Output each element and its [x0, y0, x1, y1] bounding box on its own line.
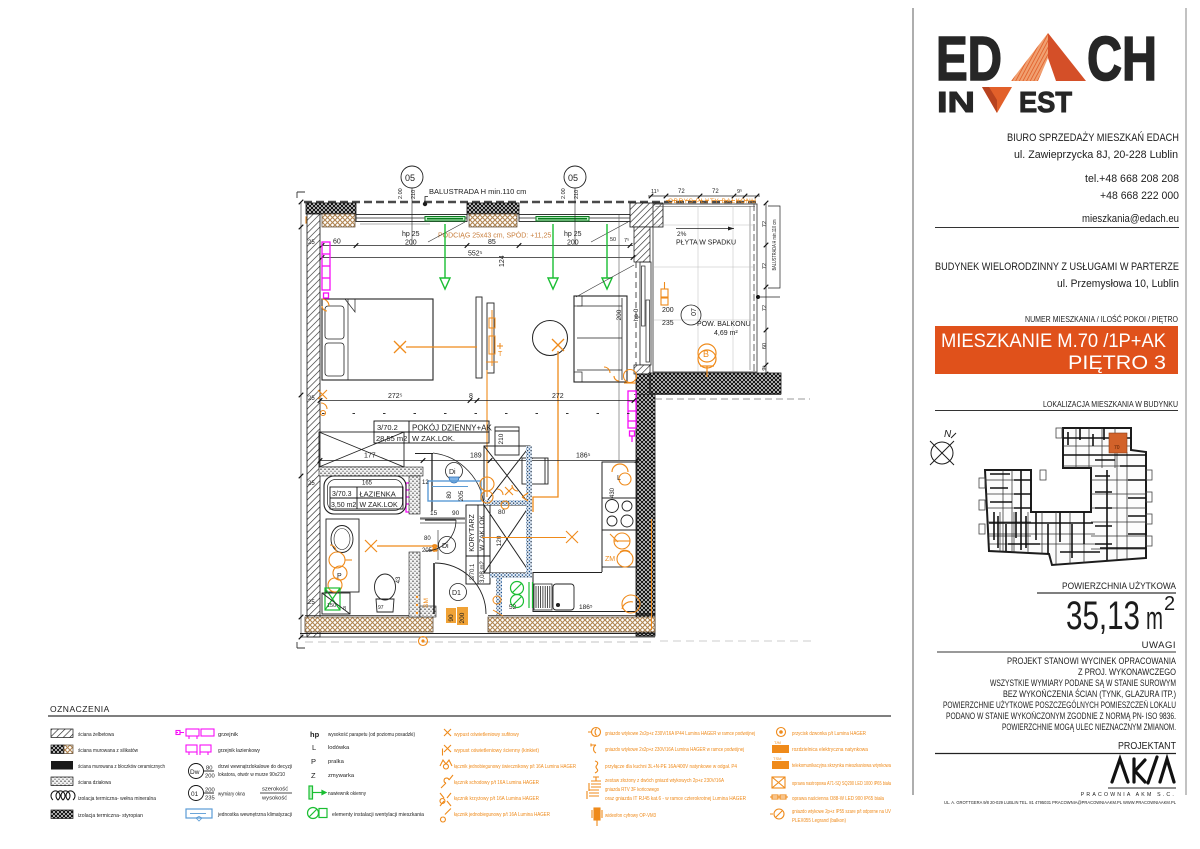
- svg-text:2: 2: [1164, 593, 1175, 615]
- svg-text:7⁵: 7⁵: [624, 237, 629, 244]
- svg-text:210: 210: [411, 190, 417, 199]
- svg-text:80: 80: [498, 509, 506, 516]
- svg-text:205: 205: [422, 548, 433, 554]
- svg-text:POKÓJ DZIENNY+AK: POKÓJ DZIENNY+AK: [412, 424, 492, 433]
- svg-text:177: 177: [364, 453, 376, 460]
- svg-text:ED: ED: [936, 25, 1002, 94]
- svg-text:05: 05: [568, 173, 578, 183]
- svg-text:hp 0: hp 0: [633, 308, 640, 321]
- svg-text:TSM: TSM: [773, 756, 781, 761]
- svg-text:IN: IN: [937, 87, 975, 119]
- svg-text:80: 80: [446, 491, 453, 499]
- svg-text:552⁵: 552⁵: [468, 251, 483, 258]
- svg-text:B: B: [703, 349, 709, 359]
- svg-text:186⁵: 186⁵: [576, 453, 591, 460]
- svg-text:T: T: [498, 351, 503, 358]
- svg-text:200: 200: [205, 788, 215, 794]
- svg-text:gniazdo wtykowe 2x2p+z 230V/16: gniazdo wtykowe 2x2p+z 230V/16A Lumina H…: [605, 747, 744, 753]
- svg-text:12: 12: [422, 480, 429, 486]
- svg-text:ul. Zawieprzycka 8J, 20-228 Lu: ul. Zawieprzycka 8J, 20-228 Lublin: [1014, 149, 1178, 161]
- svg-text:ściana murowana z silikatów: ściana murowana z silikatów: [78, 748, 139, 754]
- svg-text:BUDYNEK WIELORODZINNY Z USŁUGA: BUDYNEK WIELORODZINNY Z USŁUGAMI W PARTE…: [935, 261, 1179, 273]
- svg-text:SM: SM: [423, 598, 430, 608]
- svg-text:grzejnik łazienkowy: grzejnik łazienkowy: [218, 748, 260, 754]
- svg-text:72: 72: [762, 221, 768, 227]
- svg-text:8: 8: [343, 606, 346, 612]
- svg-text:ul. Przemysłowa 10, Lublin: ul. Przemysłowa 10, Lublin: [1057, 278, 1179, 290]
- svg-text:UL. A. GROTTGERA 9/8 20-029: UL. A. GROTTGERA 9/8 20-029 LUBLIN TEL. …: [944, 800, 1177, 805]
- svg-text:wypust oświetleniowy ścienny (: wypust oświetleniowy ścienny (kinkiet): [453, 748, 539, 754]
- svg-text:izolacja termiczna- wełna mine: izolacja termiczna- wełna mineralna: [78, 796, 157, 802]
- svg-text:8: 8: [469, 393, 473, 400]
- svg-text:pralka: pralka: [328, 759, 345, 765]
- svg-text:52: 52: [509, 604, 517, 611]
- svg-text:lokatora, otwór w murze 90x210: lokatora, otwór w murze 90x210: [218, 772, 285, 778]
- svg-text:124: 124: [499, 255, 506, 267]
- svg-text:9⁵: 9⁵: [761, 365, 768, 370]
- svg-text:25: 25: [308, 396, 315, 402]
- svg-text:+48 668 222 000: +48 668 222 000: [1100, 190, 1179, 202]
- svg-text:CH: CH: [1087, 25, 1157, 94]
- svg-text:PODANO W STANIE WYKOŃCZONYM ZG: PODANO W STANIE WYKOŃCZONYM ZGODNIE Z NO…: [946, 711, 1176, 721]
- svg-text:189: 189: [470, 453, 482, 460]
- svg-text:9⁵: 9⁵: [737, 188, 742, 195]
- svg-text:3/70.2: 3/70.2: [377, 423, 398, 432]
- svg-text:hp: hp: [310, 730, 320, 739]
- svg-text:80: 80: [206, 766, 212, 772]
- svg-text:200: 200: [205, 774, 215, 780]
- svg-text:rozdzielnica elektryczna natyn: rozdzielnica elektryczna natynkowa: [792, 747, 869, 753]
- svg-text:gniazdo wtykowe 2x2p+z 230V/16: gniazdo wtykowe 2x2p+z 230V/16A IP44 Lum…: [605, 731, 755, 737]
- svg-text:łącznik schodowy p/t 16A Lumi: łącznik schodowy p/t 16A Lumina HAGER: [454, 780, 539, 786]
- svg-text:2%: 2%: [677, 231, 687, 238]
- svg-text:90: 90: [452, 510, 460, 517]
- svg-text:150: 150: [327, 603, 336, 609]
- svg-text:25: 25: [308, 600, 315, 606]
- svg-text:Z: Z: [311, 771, 316, 780]
- svg-text:łącznik krzyżowy p/t 16A Lumi: łącznik krzyżowy p/t 16A Lumina HAGER: [454, 796, 539, 802]
- svg-text:05: 05: [405, 173, 415, 183]
- svg-text:POW. BALKONU: POW. BALKONU: [697, 321, 751, 328]
- svg-text:izolacja termiczna- styropian: izolacja termiczna- styropian: [78, 813, 143, 819]
- svg-text:85: 85: [488, 239, 496, 246]
- svg-text:Di: Di: [442, 543, 449, 550]
- svg-text:3,50 m2: 3,50 m2: [331, 502, 356, 509]
- svg-text:wysokość parapetu (od poziomu: wysokość parapetu (od poziomu posadzki): [327, 732, 415, 738]
- svg-text:4,69 m²: 4,69 m²: [714, 330, 738, 337]
- svg-text:11⁵: 11⁵: [651, 188, 659, 195]
- svg-text:W ZAK.LOK: W ZAK.LOK: [360, 502, 398, 509]
- svg-text:łącznik jednobiegunowy świeczn: łącznik jednobiegunowy świecznikowy p/t …: [454, 764, 576, 770]
- svg-text:P: P: [311, 757, 316, 766]
- svg-text:25: 25: [308, 240, 315, 246]
- svg-text:OBRYS PŁYTY BALKONU: OBRYS PŁYTY BALKONU: [668, 198, 756, 205]
- svg-text:NUMER MIESZKANIA / ILOŚĆ POKOI: NUMER MIESZKANIA / ILOŚĆ POKOI / PIĘTRO: [1025, 313, 1178, 324]
- svg-text:elementy instalacji wentylacji: elementy instalacji wentylacji mieszkani…: [332, 812, 425, 818]
- svg-text:PROJEKTANT: PROJEKTANT: [1118, 740, 1176, 752]
- svg-text:POWIERZCHNIE MOGĄ ULEC NIEZNAC: POWIERZCHNIE MOGĄ ULEC NIEZNACZNYM ZMIAN…: [1002, 722, 1176, 732]
- svg-text:KORYTARZ: KORYTARZ: [469, 514, 476, 552]
- svg-text:POWIERZCHNIA UŻYTKOWA: POWIERZCHNIA UŻYTKOWA: [1062, 581, 1177, 592]
- svg-text:jednostka wewnętrzna klimatyza: jednostka wewnętrzna klimatyzacji: [217, 812, 292, 818]
- svg-text:przycisk dzwonka p/t Lumina HA: przycisk dzwonka p/t Lumina HAGER: [792, 731, 866, 737]
- svg-text:70: 70: [1114, 445, 1120, 451]
- svg-text:60: 60: [762, 343, 768, 349]
- svg-text:ŁAZIENKA: ŁAZIENKA: [360, 490, 396, 499]
- svg-text:L: L: [617, 475, 621, 482]
- svg-text:90: 90: [448, 614, 455, 622]
- svg-text:97: 97: [378, 605, 384, 611]
- svg-text:15: 15: [430, 510, 438, 517]
- svg-text:72: 72: [712, 189, 719, 195]
- svg-text:W ZAK.LOK.: W ZAK.LOK.: [412, 434, 455, 443]
- svg-text:01: 01: [191, 791, 199, 798]
- svg-text:07: 07: [691, 308, 698, 316]
- svg-text:60: 60: [333, 239, 341, 246]
- svg-text:L: L: [312, 743, 316, 752]
- svg-text:wymiary okna: wymiary okna: [217, 792, 245, 798]
- svg-text:235: 235: [662, 320, 674, 327]
- svg-text:szerokość: szerokość: [262, 787, 288, 793]
- svg-text:2.00: 2.00: [561, 188, 567, 199]
- svg-text:ściana działowa: ściana działowa: [78, 780, 112, 786]
- svg-text:BALUSTRADA H min.110 cm: BALUSTRADA H min.110 cm: [429, 187, 526, 196]
- svg-text:D1: D1: [452, 590, 461, 597]
- svg-text:grzejnik: grzejnik: [218, 732, 238, 738]
- svg-text:wideofon cyfrowy OP-VM3: wideofon cyfrowy OP-VM3: [604, 813, 656, 819]
- svg-text:2.00: 2.00: [398, 188, 404, 199]
- svg-text:tel.+48 668 208 208: tel.+48 668 208 208: [1085, 173, 1179, 185]
- svg-text:50: 50: [610, 237, 616, 243]
- svg-text:200: 200: [616, 309, 623, 320]
- svg-text:gniazdo wtykowe 2p+z IP55 szar: gniazdo wtykowe 2p+z IP55 szare p/t odpo…: [792, 809, 891, 815]
- svg-text:72: 72: [762, 263, 768, 269]
- svg-text:BEZ WYKOŃCZENIA ŚCIAN (TYNK, G: BEZ WYKOŃCZENIA ŚCIAN (TYNK, GLAZURA ITP…: [1003, 688, 1176, 699]
- svg-text:BIURO SPRZEDAŻY MIESZKAŃ EDACH: BIURO SPRZEDAŻY MIESZKAŃ EDACH: [1007, 131, 1179, 144]
- svg-text:205: 205: [458, 490, 465, 501]
- svg-text:72: 72: [678, 189, 685, 195]
- svg-text:28,55 m2: 28,55 m2: [376, 434, 407, 443]
- svg-text:OZNACZENIA: OZNACZENIA: [50, 704, 110, 714]
- svg-text:72: 72: [762, 305, 768, 311]
- svg-text:MIESZKANIE M.70 /1P+AK: MIESZKANIE M.70 /1P+AK: [941, 331, 1166, 352]
- svg-text:W ZAK.LOK: W ZAK.LOK: [479, 515, 486, 551]
- svg-text:nawiewnik okienny: nawiewnik okienny: [328, 791, 366, 797]
- svg-text:ZM: ZM: [605, 556, 615, 563]
- svg-text:hp 25: hp 25: [564, 231, 582, 238]
- svg-text:PROJEKT STANOWI WYCINEK OPRACO: PROJEKT STANOWI WYCINEK OPRACOWANIA: [1007, 656, 1176, 666]
- svg-text:3/70.3: 3/70.3: [332, 491, 352, 498]
- svg-text:zestaw złożony z dwóch gniazd: zestaw złożony z dwóch gniazd wtykowych …: [605, 778, 724, 784]
- svg-text:200: 200: [662, 307, 674, 314]
- svg-text:N: N: [944, 429, 952, 440]
- svg-text:EST: EST: [1019, 87, 1072, 119]
- svg-text:210: 210: [574, 190, 580, 199]
- svg-text:PRACOWNIA AKM S.C.: PRACOWNIA AKM S.C.: [1081, 792, 1176, 798]
- svg-text:272: 272: [552, 393, 564, 400]
- svg-text:LOKALIZACJA MIESZKANIA W BUDYN: LOKALIZACJA MIESZKANIA W BUDYNKU: [1043, 399, 1178, 409]
- svg-text:drzwi wewnątrzlokalowe do decy: drzwi wewnątrzlokalowe do decyzji: [218, 764, 292, 770]
- svg-text:oprawa nastropowa A71-SQ SQ290: oprawa nastropowa A71-SQ SQ290 LED 1000 …: [792, 781, 892, 787]
- svg-text:430: 430: [610, 487, 616, 498]
- svg-text:T/M: T/M: [774, 740, 781, 745]
- svg-text:gniazda RTV 3F końcowego: gniazda RTV 3F końcowego: [605, 787, 659, 793]
- svg-text:lodówka: lodówka: [328, 745, 350, 751]
- svg-text:m: m: [1146, 600, 1163, 636]
- svg-text:hp 25: hp 25: [402, 231, 420, 238]
- svg-text:PLEX055 Legrand (balkon): PLEX055 Legrand (balkon): [792, 818, 846, 824]
- svg-text:PODCIĄG 25x43 cm, SPÓD: +11,25: PODCIĄG 25x43 cm, SPÓD: +11,25: [438, 231, 551, 240]
- svg-text:Dw: Dw: [190, 769, 200, 776]
- svg-text:35,13: 35,13: [1066, 594, 1140, 638]
- svg-text:235: 235: [205, 796, 215, 802]
- svg-text:186⁵: 186⁵: [579, 604, 593, 611]
- svg-text:WSZYSTKIE WYMIARY PODANE SĄ W: WSZYSTKIE WYMIARY PODANE SĄ W STANIE SUR…: [990, 678, 1176, 688]
- svg-text:ściana murowana z bloczków cer: ściana murowana z bloczków ceramicznych: [78, 764, 165, 770]
- svg-text:80: 80: [424, 536, 431, 542]
- svg-text:telekomunikacyjna skrzynka mie: telekomunikacyjna skrzynka mieszkaniowa …: [792, 763, 892, 769]
- svg-text:200: 200: [459, 612, 466, 623]
- svg-text:BALUSTRADA H min.110 cm: BALUSTRADA H min.110 cm: [772, 219, 778, 270]
- svg-text:272⁵: 272⁵: [388, 393, 403, 400]
- svg-text:POWIERZCHNIE UŻYTKOWE POSZCZEG: POWIERZCHNIE UŻYTKOWE POSZCZEGÓLNYCH POM…: [943, 700, 1176, 710]
- svg-text:ściana żelbetowa: ściana żelbetowa: [78, 732, 115, 738]
- svg-text:oraz gniazda IT RJ45 kat.6 - w: oraz gniazda IT RJ45 kat.6 - w ramce czt…: [605, 796, 746, 802]
- svg-text:przyłącze dla kuchni 3L+N-PE 1: przyłącze dla kuchni 3L+N-PE 16A/400V na…: [605, 764, 737, 770]
- svg-text:zmywarka: zmywarka: [328, 773, 355, 779]
- svg-text:UWAGI: UWAGI: [1142, 640, 1176, 651]
- svg-text:mieszkania@edach.eu: mieszkania@edach.eu: [1082, 213, 1179, 225]
- svg-text:90: 90: [432, 544, 439, 552]
- svg-text:120: 120: [496, 535, 503, 546]
- svg-text:łącznik jednobiegunowy p/t 16A: łącznik jednobiegunowy p/t 16A Lumina HA…: [454, 812, 550, 818]
- svg-text:PIĘTRO 3: PIĘTRO 3: [1068, 353, 1166, 374]
- svg-text:wypust oświetleniowy sufitowy: wypust oświetleniowy sufitowy: [453, 732, 519, 738]
- svg-text:25: 25: [308, 481, 315, 487]
- svg-text:Z PROJ. WYKONAWCZEGO: Z PROJ. WYKONAWCZEGO: [1078, 667, 1176, 677]
- svg-text:210: 210: [498, 433, 505, 444]
- svg-text:PŁYTA W SPADKU: PŁYTA W SPADKU: [676, 240, 736, 247]
- svg-text:wysokość: wysokość: [261, 796, 287, 802]
- svg-text:Di: Di: [449, 469, 456, 476]
- svg-text:43: 43: [396, 576, 402, 583]
- svg-text:165: 165: [362, 481, 373, 487]
- svg-text:oprawa naścienna O88-W LED 900: oprawa naścienna O88-W LED 900 IP65 biał…: [792, 796, 885, 802]
